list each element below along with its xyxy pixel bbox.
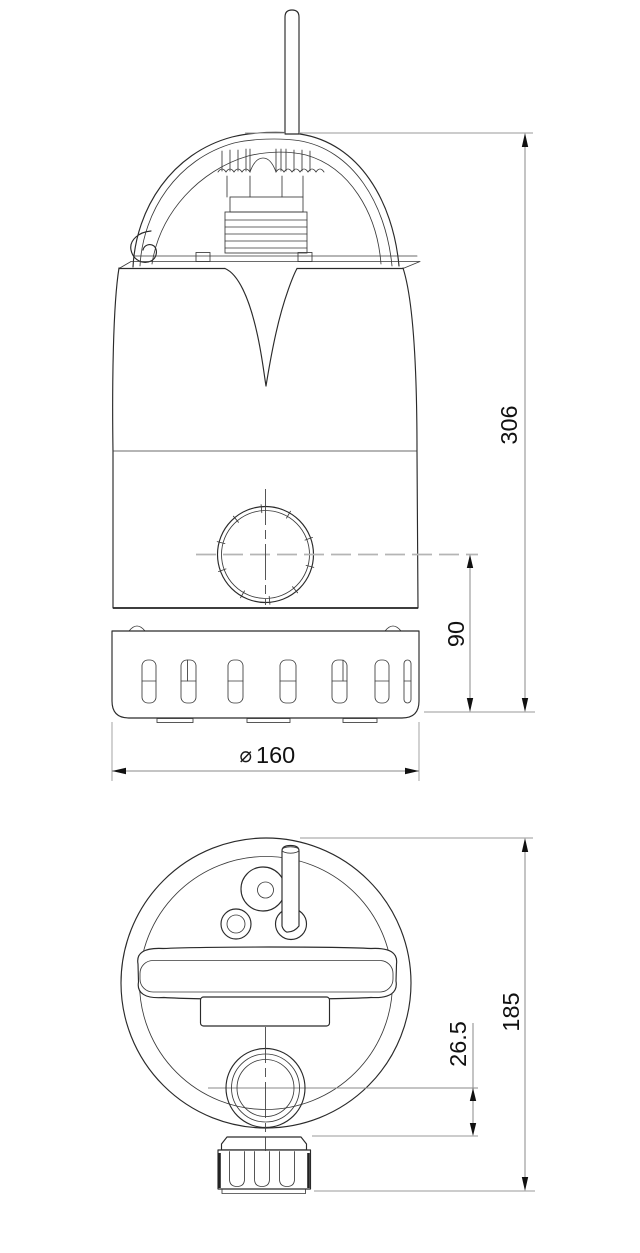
bottom-tab	[201, 997, 330, 1026]
body-right-edge	[403, 268, 418, 608]
strainer-slots	[142, 660, 411, 703]
power-cable-top	[282, 846, 299, 933]
top-view	[121, 838, 478, 1194]
top-view-dimensions: 185 26.5	[300, 838, 535, 1191]
technical-drawing-page: 306 90 ⌀ 160	[0, 0, 640, 1253]
dim-label-overall-depth: 185	[498, 992, 524, 1031]
front-view-dimensions: 306 90 ⌀ 160	[112, 133, 535, 781]
discharge-port-top	[208, 1049, 478, 1128]
base-bumps	[129, 626, 401, 631]
dim-label-port-offset: 26.5	[445, 1021, 471, 1067]
arrow-26-5-top	[470, 1088, 476, 1101]
power-cable	[285, 10, 299, 134]
dim-label-port-height: 90	[443, 621, 469, 647]
discharge-port-front	[196, 489, 478, 605]
arrow-26-5-bottom	[470, 1123, 476, 1136]
dome-inner	[140, 139, 392, 266]
pump-dimensional-drawing: 306 90 ⌀ 160	[0, 0, 640, 1253]
hose-coupling	[218, 1137, 311, 1194]
arrow-306-bottom	[522, 698, 528, 712]
arrow-90-bottom	[467, 698, 473, 712]
front-view	[112, 10, 478, 723]
dome-flange	[119, 253, 420, 269]
arrow-185-top	[522, 838, 528, 852]
arrow-185-bottom	[522, 1177, 528, 1191]
dim-label-base-diameter: 160	[256, 742, 295, 768]
dim-label-overall-height: 306	[496, 405, 522, 444]
diameter-symbol: ⌀	[239, 743, 252, 767]
carrying-handle	[138, 947, 397, 999]
body-left-edge	[113, 268, 119, 608]
screw-plug	[225, 176, 307, 253]
cable-hook	[131, 231, 157, 262]
v-notch	[225, 269, 297, 387]
vent-plug-outer	[221, 909, 251, 939]
gland-boss	[241, 867, 285, 911]
arrow-90-top	[467, 555, 473, 569]
base-feet	[157, 719, 377, 723]
arrow-160-right	[405, 768, 419, 774]
strainer-base	[112, 631, 419, 718]
arrow-160-left	[112, 768, 126, 774]
arrow-306-top	[522, 133, 528, 147]
